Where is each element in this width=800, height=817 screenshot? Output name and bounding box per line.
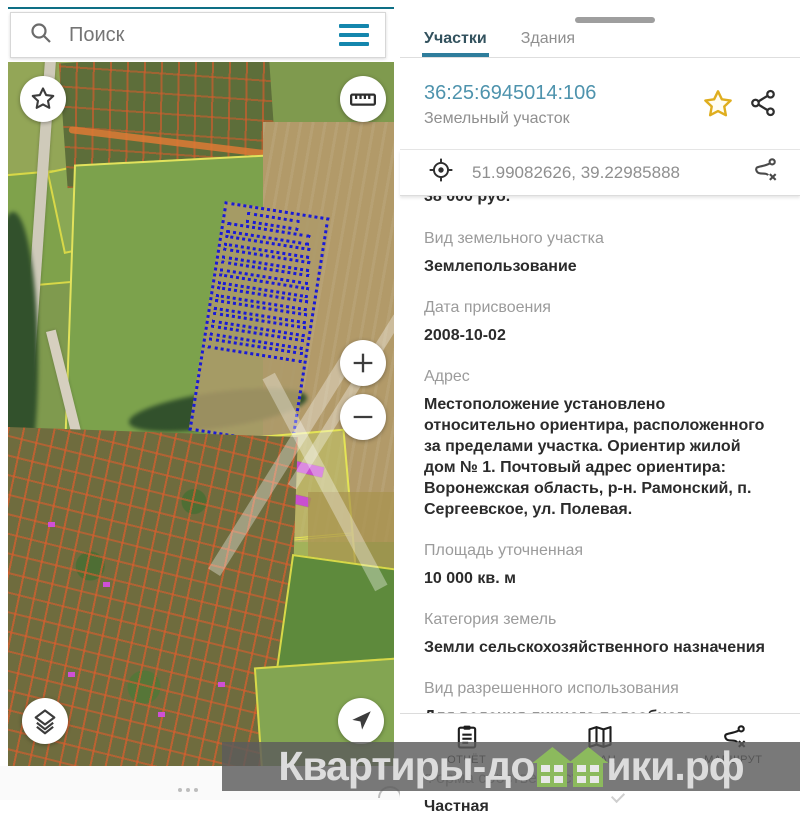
favorite-star-button[interactable] [20,76,66,122]
field-label: Вид земельного участка [424,230,776,248]
field-label: Вид разрешенного использования [424,680,776,698]
clipped-price: 38 000 руб. [424,196,776,208]
parcel-id[interactable]: 36:25:6945014:106 [424,82,596,105]
route-clear-icon[interactable] [750,156,778,189]
top-accent-line [8,7,394,9]
field-label: Категория земель [424,611,776,629]
search-icon [29,21,53,50]
zoom-out-button[interactable] [340,394,386,440]
house-logo-icon [535,747,569,787]
menu-icon[interactable] [339,24,369,46]
field-value: Частная [424,796,776,817]
tab-parcels[interactable]: Участки [424,30,487,57]
divider [400,57,800,58]
field-value: Землепользование [424,256,776,277]
parcel-type-label: Земельный участок [424,110,570,128]
map-panel: Поиск [0,0,400,800]
coordinates-value[interactable]: 51.99082626, 39.22985888 [472,163,750,183]
tab-buildings[interactable]: Здания [521,30,575,57]
field-label: Дата присвоения [424,299,776,317]
site-watermark: Квартиры-до ики.рф [222,742,800,791]
gps-target-icon[interactable] [428,157,454,188]
details-panel: Участки Здания 36:25:6945014:106 Земельн… [400,0,800,800]
layers-button[interactable] [22,698,68,744]
field-value: 10 000 кв. м [424,568,776,589]
nav-dots-icon [178,788,182,792]
search-bar[interactable]: Поиск [10,12,386,58]
search-input[interactable]: Поиск [69,24,339,47]
coordinates-row: 51.99082626, 39.22985888 [400,150,800,196]
watermark-text: Квартиры-до ики.рф [278,746,743,787]
field-value: Местоположение установлено относительно … [424,394,776,520]
satellite-map[interactable] [8,62,394,766]
locate-button[interactable] [338,698,384,744]
field-value: 2008-10-02 [424,325,776,346]
tab-bar: Участки Здания [400,26,800,57]
house-logo-icon [571,747,605,787]
field-value: Земли сельскохозяйственного назначения [424,637,776,658]
share-icon[interactable] [748,88,778,123]
favorite-star-icon[interactable] [702,88,734,125]
field-label: Площадь уточненная [424,542,776,560]
zoom-in-button[interactable] [340,340,386,386]
ruler-button[interactable] [340,76,386,122]
app-screen: Поиск [0,0,800,800]
drag-handle[interactable] [575,17,655,23]
field-label: Адрес [424,368,776,386]
